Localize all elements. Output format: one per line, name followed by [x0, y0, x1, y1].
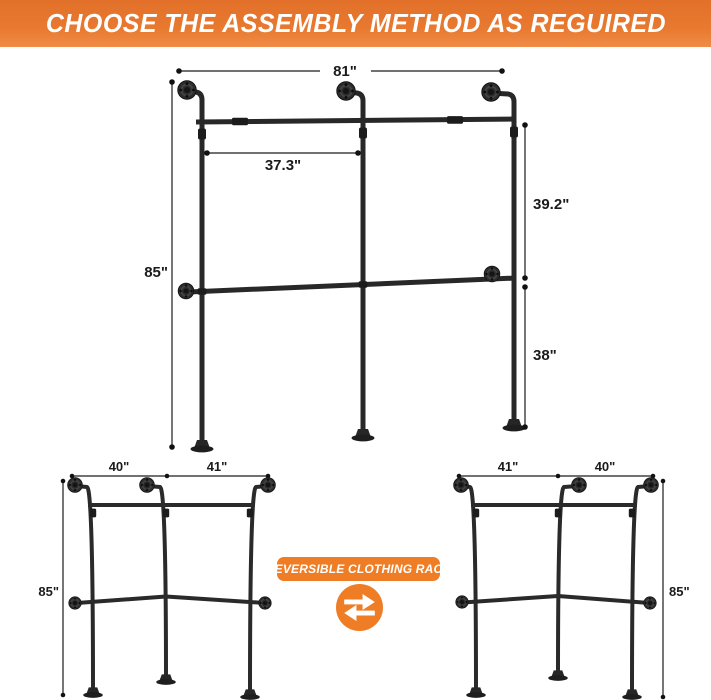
wall-flange-icon — [572, 478, 587, 493]
main-lower-section-label: 38" — [533, 347, 557, 364]
dim-corner-left-height: 85" — [38, 479, 65, 698]
corner-left-middle-bar — [77, 597, 265, 604]
floor-flange-icon — [352, 429, 375, 441]
main-total-width-label: 81" — [333, 63, 357, 80]
main-upper-section-label: 39.2" — [533, 196, 569, 213]
dim-lower-section: 38" — [522, 284, 557, 430]
corner-left-span2-label: 41" — [207, 459, 228, 474]
dim-total-width: 81" — [176, 63, 505, 80]
reversible-badge: REVERSIBLE CLOTHING RACK — [277, 557, 440, 581]
dim-corner-left-spans: 40" 41" — [70, 459, 271, 478]
reversible-badge-label: REVERSIBLE CLOTHING RACK — [266, 562, 451, 576]
wall-flange-icon — [140, 478, 155, 493]
wall-flange-icon — [178, 81, 196, 99]
corner-rack-right-diagram: 41" 40" 85" — [454, 459, 690, 700]
floor-flange-icon — [156, 674, 176, 685]
corner-left-pole-3 — [250, 486, 267, 694]
wall-flange-icon — [454, 478, 469, 493]
corner-right-span1-label: 41" — [498, 459, 519, 474]
wall-flange-icon — [337, 82, 355, 100]
wall-flange-icon — [644, 597, 657, 610]
main-middle-bar — [189, 278, 516, 292]
main-right-pole — [491, 93, 514, 425]
wall-flange-icon — [68, 478, 83, 493]
dim-upper-section: 39.2" — [522, 122, 569, 281]
corner-left-height-label: 85" — [38, 584, 59, 599]
wall-flange-icon — [178, 283, 194, 299]
dim-corner-right-spans: 41" 40" — [457, 459, 656, 478]
floor-flange-icon — [548, 670, 568, 681]
dim-total-height: 85" — [144, 79, 175, 450]
floor-flange-icon — [503, 419, 526, 431]
wall-flange-icon — [484, 266, 500, 282]
wall-flange-icon — [482, 83, 500, 101]
wall-flange-icon — [261, 478, 276, 493]
dim-rod-span: 37.3" — [204, 150, 361, 174]
corner-left-span1-label: 40" — [109, 459, 130, 474]
main-rod-span-label: 37.3" — [265, 157, 301, 174]
swap-arrows-icon — [336, 584, 383, 631]
main-left-pole — [187, 91, 202, 446]
wall-flange-icon — [456, 596, 469, 609]
floor-flange-icon — [83, 687, 103, 698]
wall-flange-icon — [259, 597, 272, 610]
floor-flange-icon — [466, 687, 486, 698]
corner-right-pole-3 — [632, 486, 650, 694]
corner-right-height-label: 85" — [669, 584, 690, 599]
main-rack-diagram: 81" 85" 37.3" 39.2" — [144, 63, 569, 452]
floor-flange-icon — [191, 440, 214, 452]
dim-corner-right-height: 85" — [661, 479, 690, 700]
wall-flange-icon — [69, 597, 82, 610]
product-infographic: CHOOSE THE ASSEMBLY METHOD AS REGUIRED — [0, 0, 711, 700]
corner-right-middle-bar — [463, 596, 649, 603]
corner-right-span2-label: 40" — [595, 459, 616, 474]
wall-flange-icon — [644, 478, 659, 493]
main-total-height-label: 85" — [144, 264, 168, 281]
floor-flange-icon — [240, 689, 260, 700]
main-middle-pole — [346, 92, 363, 435]
corner-rack-left-diagram: 40" 41" 85" — [38, 459, 275, 700]
floor-flange-icon — [622, 689, 642, 700]
